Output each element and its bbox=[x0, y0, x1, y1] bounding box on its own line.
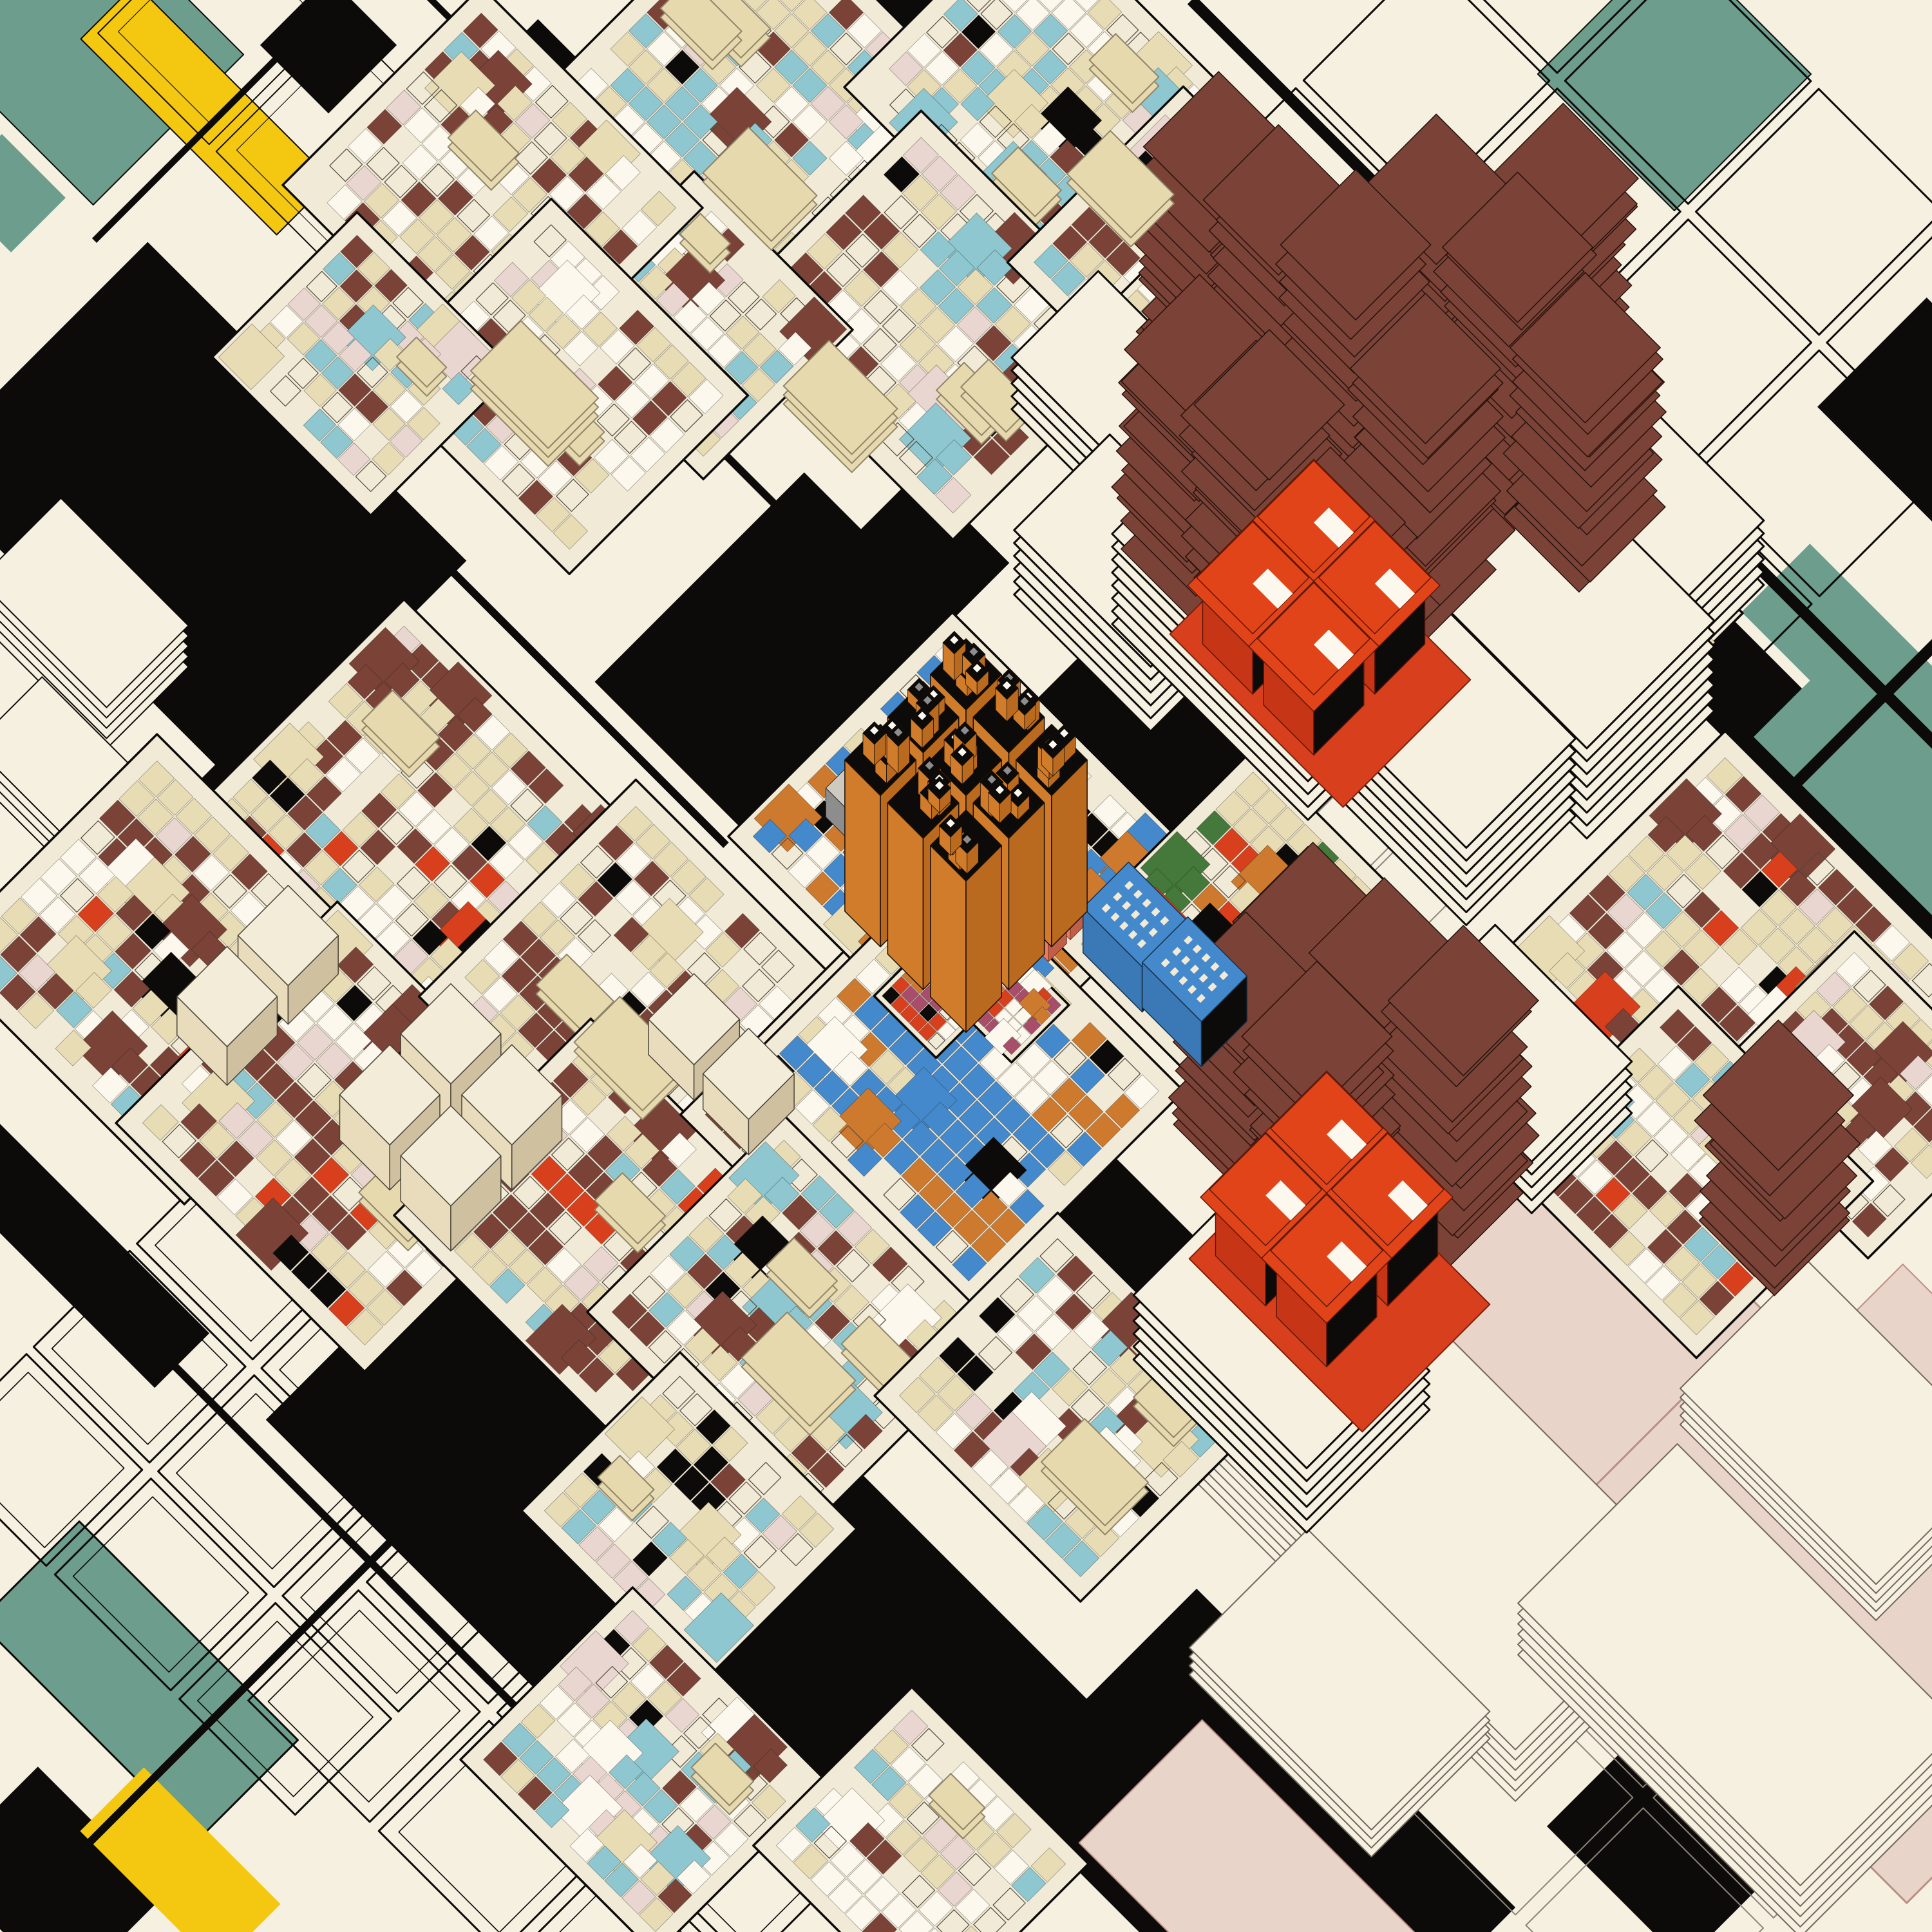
artwork-stage bbox=[0, 0, 1932, 1932]
generative-city-canvas bbox=[0, 0, 1932, 1932]
generative-art-page: { "artwork": { "kind": "isometric-genera… bbox=[0, 0, 1932, 1932]
